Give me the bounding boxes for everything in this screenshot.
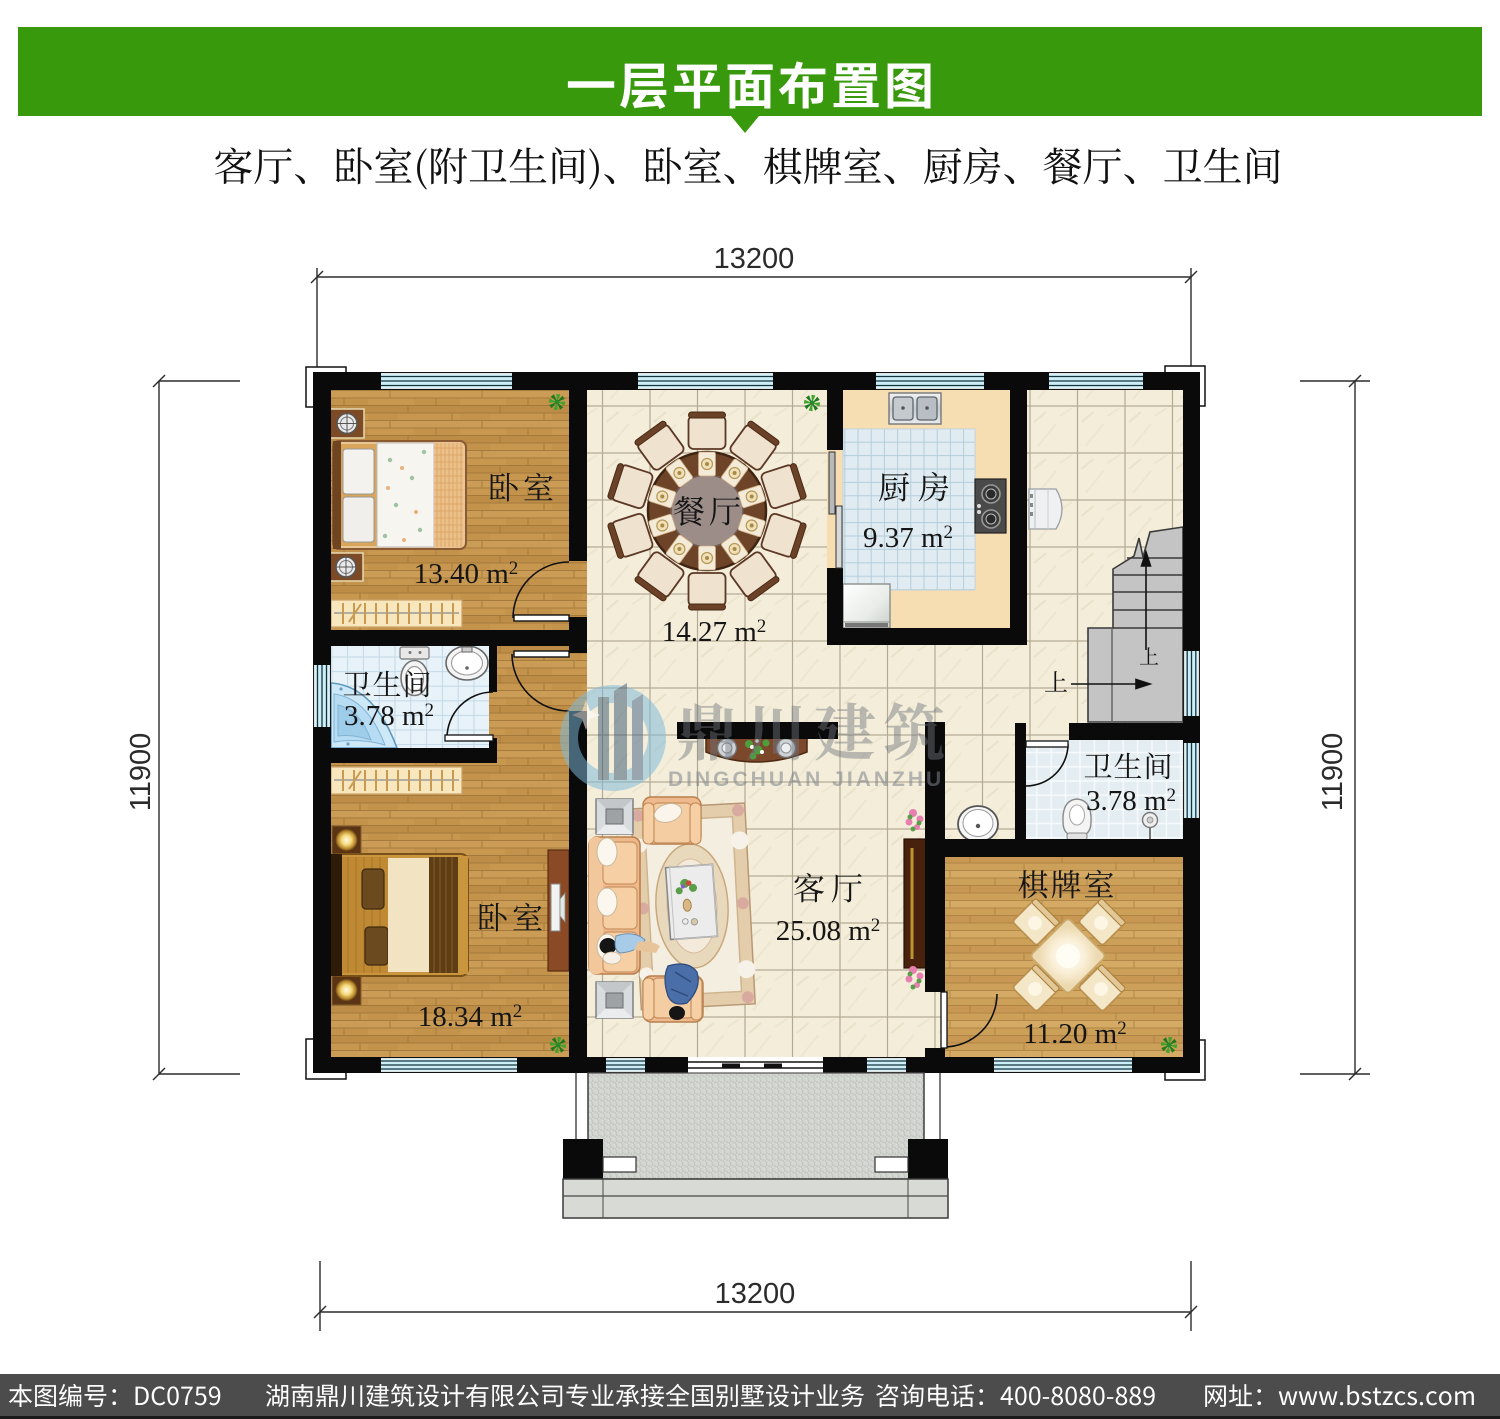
svg-text:13200: 13200 — [715, 1278, 796, 1310]
svg-text:13200: 13200 — [714, 243, 795, 275]
svg-text:11900: 11900 — [125, 733, 157, 812]
svg-text:13.40 m2: 13.40 m2 — [414, 558, 519, 590]
svg-text:3.78 m2: 3.78 m2 — [1086, 785, 1176, 817]
svg-text:11900: 11900 — [1317, 733, 1349, 812]
svg-text:25.08 m2: 25.08 m2 — [776, 915, 881, 947]
svg-text:18.34 m2: 18.34 m2 — [418, 1001, 523, 1033]
svg-text:3.78 m2: 3.78 m2 — [344, 700, 434, 732]
svg-text:14.27 m2: 14.27 m2 — [662, 616, 767, 648]
svg-text:11.20 m2: 11.20 m2 — [1023, 1018, 1126, 1050]
svg-text:DINGCHUAN JIANZHU: DINGCHUAN JIANZHU — [668, 768, 944, 791]
svg-text:9.37 m2: 9.37 m2 — [863, 522, 953, 554]
